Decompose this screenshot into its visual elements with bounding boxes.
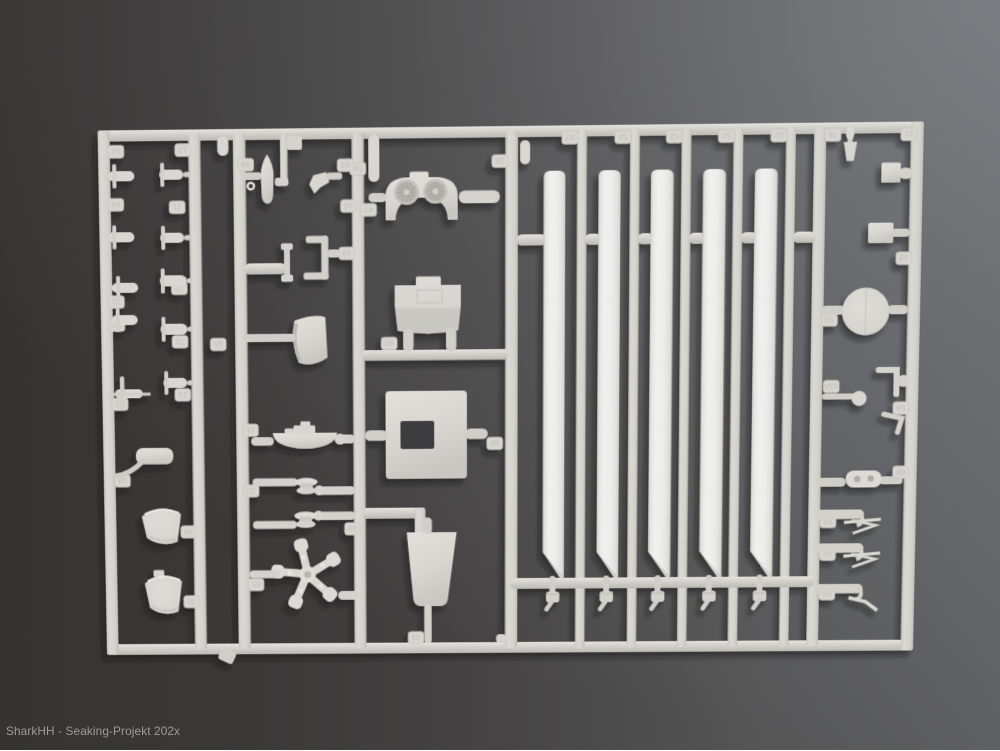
svg-text:68: 68 [896, 467, 906, 476]
svg-text:66: 66 [490, 438, 499, 447]
svg-text:50: 50 [824, 315, 834, 324]
svg-text:12: 12 [178, 145, 187, 154]
svg-text:47: 47 [364, 205, 373, 214]
svg-text:76: 76 [828, 130, 838, 139]
svg-text:70: 70 [187, 597, 196, 606]
svg-text:72: 72 [175, 337, 184, 346]
svg-text:19: 19 [342, 248, 351, 257]
svg-text:74: 74 [178, 390, 187, 399]
svg-text:65: 65 [213, 339, 222, 348]
svg-text:69: 69 [184, 527, 193, 536]
svg-text:56: 56 [353, 164, 362, 173]
svg-text:11: 11 [246, 425, 255, 434]
svg-text:52: 52 [565, 133, 574, 142]
svg-text:31: 31 [411, 633, 420, 642]
svg-text:63: 63 [111, 147, 120, 156]
svg-text:19: 19 [348, 524, 357, 533]
svg-text:61: 61 [251, 580, 260, 589]
svg-text:59: 59 [899, 253, 909, 262]
svg-text:59: 59 [896, 403, 906, 412]
svg-text:64: 64 [111, 200, 120, 209]
svg-text:52: 52 [721, 131, 731, 140]
svg-text:52: 52 [618, 132, 627, 141]
svg-text:28: 28 [495, 156, 504, 165]
svg-text:71: 71 [172, 202, 181, 211]
svg-text:65: 65 [384, 338, 393, 347]
svg-text:63A: 63A [824, 381, 839, 390]
svg-text:63: 63 [340, 160, 349, 169]
svg-text:99: 99 [241, 160, 250, 169]
svg-text:52: 52 [774, 130, 784, 139]
svg-text:61: 61 [904, 129, 914, 138]
svg-text:49: 49 [344, 201, 353, 210]
svg-text:20: 20 [246, 486, 255, 495]
svg-text:52: 52 [670, 131, 680, 140]
